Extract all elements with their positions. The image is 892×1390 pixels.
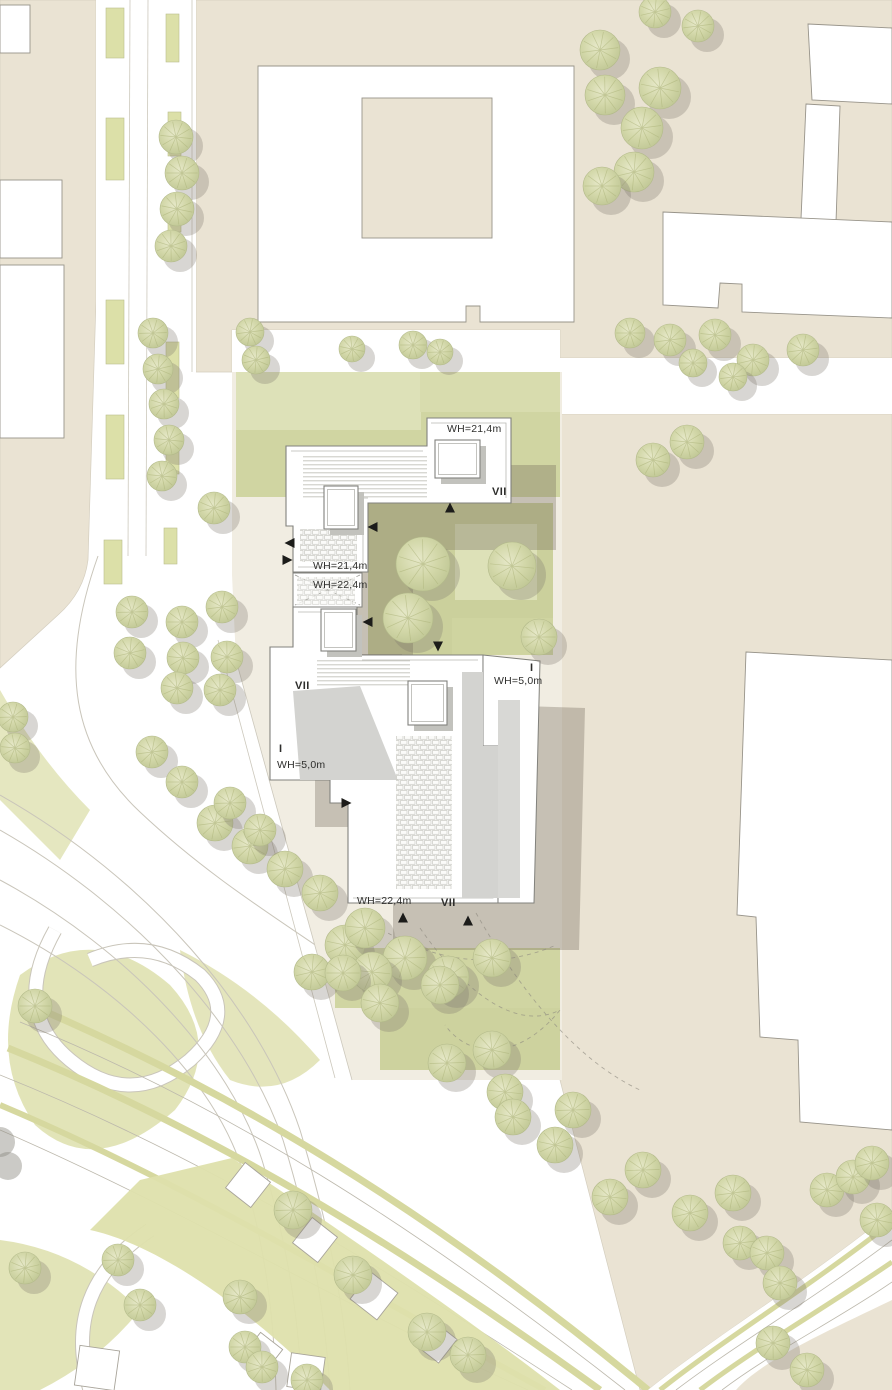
skylight: [321, 609, 356, 651]
road-median-strip: [106, 8, 124, 58]
skylight: [324, 486, 358, 529]
storey-count-label: I: [530, 662, 533, 674]
wall-height-label: WH=22,4m: [313, 579, 367, 591]
wall-height-label: WH=5,0m: [277, 759, 325, 771]
skylight: [435, 440, 480, 478]
storey-count-label: VII: [441, 897, 456, 909]
context-building-courtyard: [362, 98, 492, 238]
wall-height-label: WH=5,0m: [494, 675, 542, 687]
road-median-strip: [106, 415, 124, 479]
storey-count-label: VII: [492, 486, 507, 498]
wall-height-label: WH=21,4m: [447, 423, 501, 435]
road-median-strip: [166, 14, 179, 62]
road-median-strip: [106, 300, 124, 364]
row-house: [74, 1345, 119, 1390]
road-median-strip: [104, 540, 122, 584]
wall-height-label: WH=22,4m: [357, 895, 411, 907]
skylight: [408, 681, 447, 725]
storey-count-label: I: [279, 743, 282, 755]
site-plan-drawing: WH=21,4mWH=21,4mWH=22,4mWH=5,0mWH=5,0mWH…: [0, 0, 892, 1390]
storey-count-label: VII: [295, 680, 310, 692]
road-median-strip: [106, 118, 124, 180]
road-median-strip: [164, 528, 177, 564]
wall-height-label: WH=21,4m: [313, 560, 367, 572]
site-plan-canvas: WH=21,4mWH=21,4mWH=22,4mWH=5,0mWH=5,0mWH…: [0, 0, 892, 1390]
